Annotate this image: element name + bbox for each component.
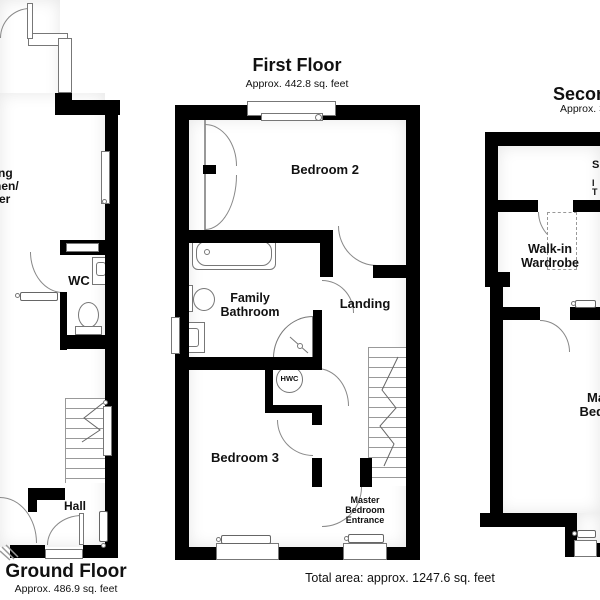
radiator — [348, 534, 384, 543]
floor-title-ground: Ground Floor — [0, 561, 146, 583]
wall-bathroom-top — [189, 230, 333, 243]
wall-top-room — [573, 200, 600, 212]
wall-bathroom-bottom — [189, 357, 322, 370]
staircase — [65, 398, 105, 483]
window-latch — [103, 400, 108, 405]
wall-hwc-bottom — [265, 405, 315, 413]
wall-bedroom3-right — [312, 405, 322, 425]
window-latch — [315, 114, 322, 121]
room-label-family-bathroom: Family Bathroom — [210, 292, 290, 320]
window — [216, 543, 279, 560]
floor-title-second: Second Floor — [553, 84, 600, 105]
room-label-landing: Landing — [330, 297, 400, 311]
door-leaf — [79, 513, 84, 545]
radiator-valve — [572, 531, 577, 536]
room-label-hall: Hall — [55, 500, 95, 513]
toilet-bowl — [78, 302, 99, 328]
total-area-text: Total area: approx. 1247.6 sq. feet — [300, 571, 500, 585]
window — [103, 406, 112, 456]
toilet-tank — [75, 326, 102, 335]
wall-wc-bottom — [65, 335, 118, 349]
radiator — [577, 530, 596, 538]
wall-second-top — [485, 132, 600, 146]
radiator — [575, 300, 596, 308]
room-label-bedroom3: Bedroom 3 — [195, 451, 295, 465]
wall-connector — [320, 230, 333, 277]
floorplan-page: Living Kitchen/ Diner WC Hall Ground Flo… — [0, 0, 600, 600]
wall-second-bottom — [480, 513, 577, 527]
radiator — [20, 292, 58, 301]
door-leaf — [27, 3, 33, 39]
wall-ground-bottom — [10, 545, 45, 558]
radiator — [99, 511, 108, 542]
wall-bathroom-right — [313, 310, 322, 363]
radiator-valve — [344, 536, 349, 541]
wall-hall-corner — [28, 488, 37, 512]
tap-mark — [177, 257, 181, 261]
radiator-valve — [571, 301, 576, 306]
wall-wardrobe-bottom — [570, 307, 600, 320]
wall-wardrobe-bottom — [490, 307, 540, 320]
wall-stairwell — [360, 458, 372, 487]
radiator-valve — [216, 537, 221, 542]
window — [574, 540, 597, 557]
wall-top-room — [485, 200, 538, 212]
wardrobe-stub — [203, 165, 216, 174]
wall-landing-bedroom2 — [373, 265, 406, 278]
tap-mark — [177, 250, 181, 254]
hwc-label: HWC — [276, 375, 303, 383]
edge-label-fragment: T — [592, 188, 600, 198]
radiator — [221, 535, 271, 544]
wall-bedroom3-right — [312, 458, 322, 487]
room-second-interior — [577, 513, 600, 543]
room-label-wc: WC — [62, 274, 96, 288]
staircase — [368, 347, 406, 486]
floor-subtitle-first: Approx. 442.8 sq. feet — [217, 78, 377, 90]
floor-subtitle-second: Approx. 317.9 sq. feet — [560, 103, 600, 115]
room-label-walk-in-wardrobe: Walk-in Wardrobe — [505, 243, 595, 271]
room-label-master-bedroom: Master Bedroom — [573, 391, 600, 420]
window — [101, 151, 110, 204]
room-label-master-entrance: Master Bedroom Entrance — [330, 496, 400, 526]
front-door — [45, 549, 83, 559]
window — [58, 38, 72, 93]
entrance-hatch — [0, 551, 10, 560]
window-latch — [102, 199, 107, 204]
room-label-living-kitchen-diner: Living Kitchen/ Diner — [0, 167, 50, 207]
floor-title-first: First Floor — [217, 55, 377, 76]
edge-label-fragment: S — [592, 159, 600, 171]
wc-shelf — [66, 243, 99, 252]
window-inner — [261, 113, 323, 121]
floor-subtitle-ground: Approx. 486.9 sq. feet — [0, 583, 146, 595]
radiator-valve — [101, 543, 106, 548]
radiator-valve — [15, 293, 20, 298]
window — [343, 543, 387, 560]
window — [171, 317, 180, 354]
wall-first-right — [406, 105, 420, 560]
room-label-bedroom2: Bedroom 2 — [275, 163, 375, 177]
bathtub-drain — [204, 249, 210, 255]
